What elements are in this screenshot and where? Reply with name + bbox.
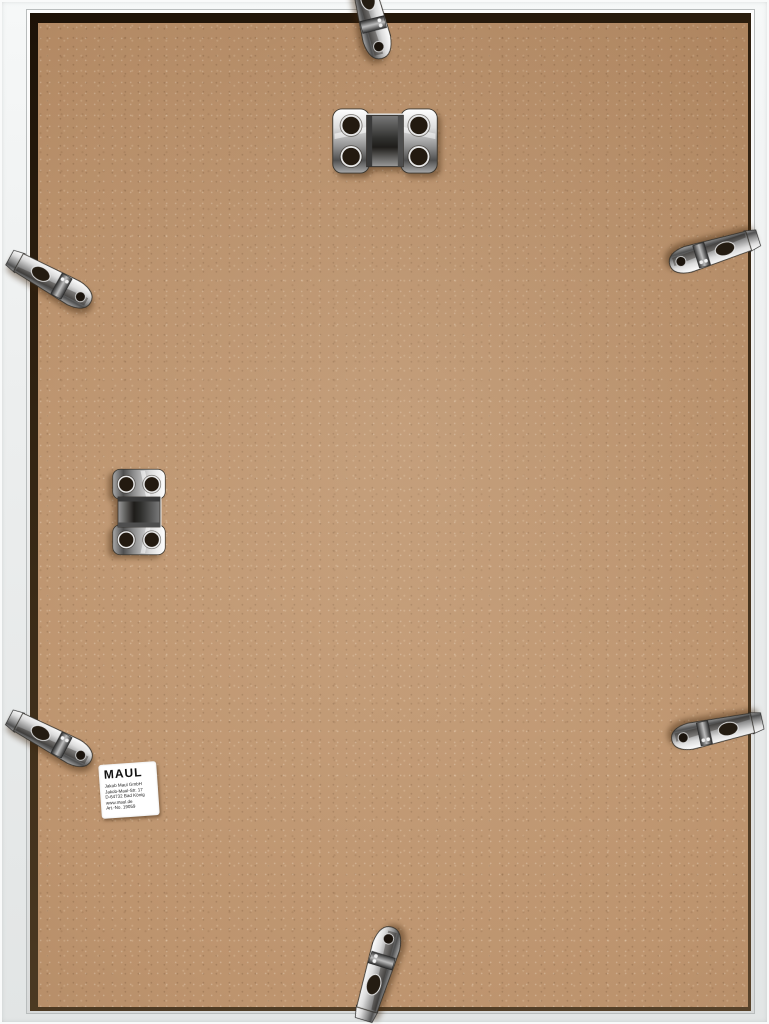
hanger-bracket-middle-icon xyxy=(110,467,168,557)
maul-logo: MAUL xyxy=(103,765,154,780)
picture-frame-back-photo: MAUL Jakob Maul GmbH Jakob-Maul-Str. 17 … xyxy=(0,0,769,1024)
hanger-bracket-top-icon xyxy=(330,106,440,176)
maul-label: MAUL Jakob Maul GmbH Jakob-Maul-Str. 17 … xyxy=(98,761,160,819)
